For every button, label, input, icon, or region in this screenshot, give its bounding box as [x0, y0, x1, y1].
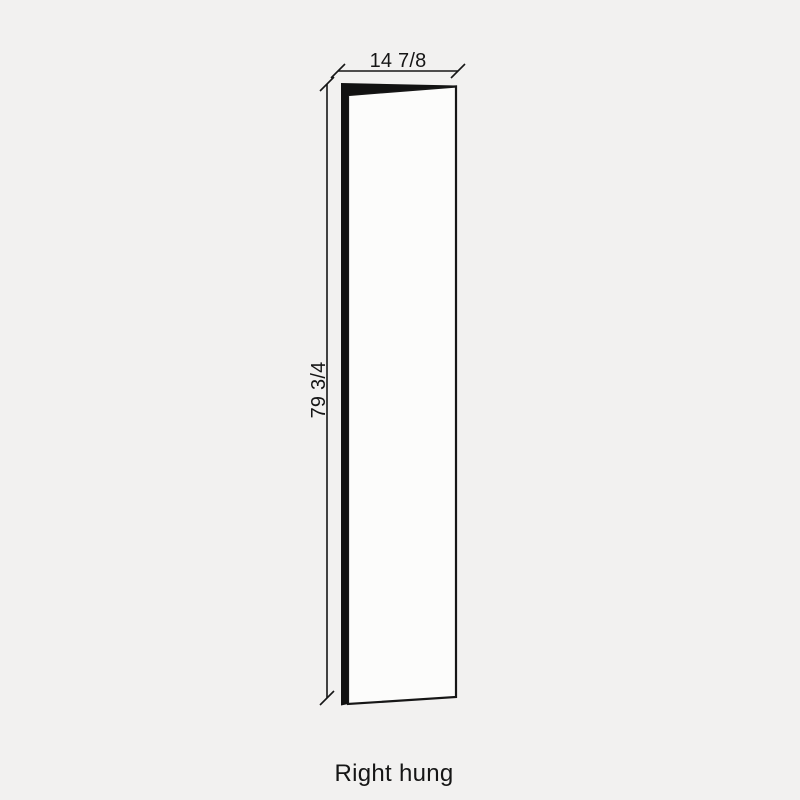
width-dimension-label: 14 7/8 [370, 50, 427, 72]
door-front-face [348, 87, 456, 705]
height-dimension-label: 79 3/4 [308, 362, 330, 419]
width-dimension: 14 7/8 [331, 50, 465, 78]
caption: Right hung [334, 760, 453, 787]
door-diagram: 14 7/8 79 3/4 Right hung [0, 0, 800, 800]
height-dimension: 79 3/4 [308, 77, 334, 705]
canvas: 14 7/8 79 3/4 Right hung [0, 0, 800, 800]
